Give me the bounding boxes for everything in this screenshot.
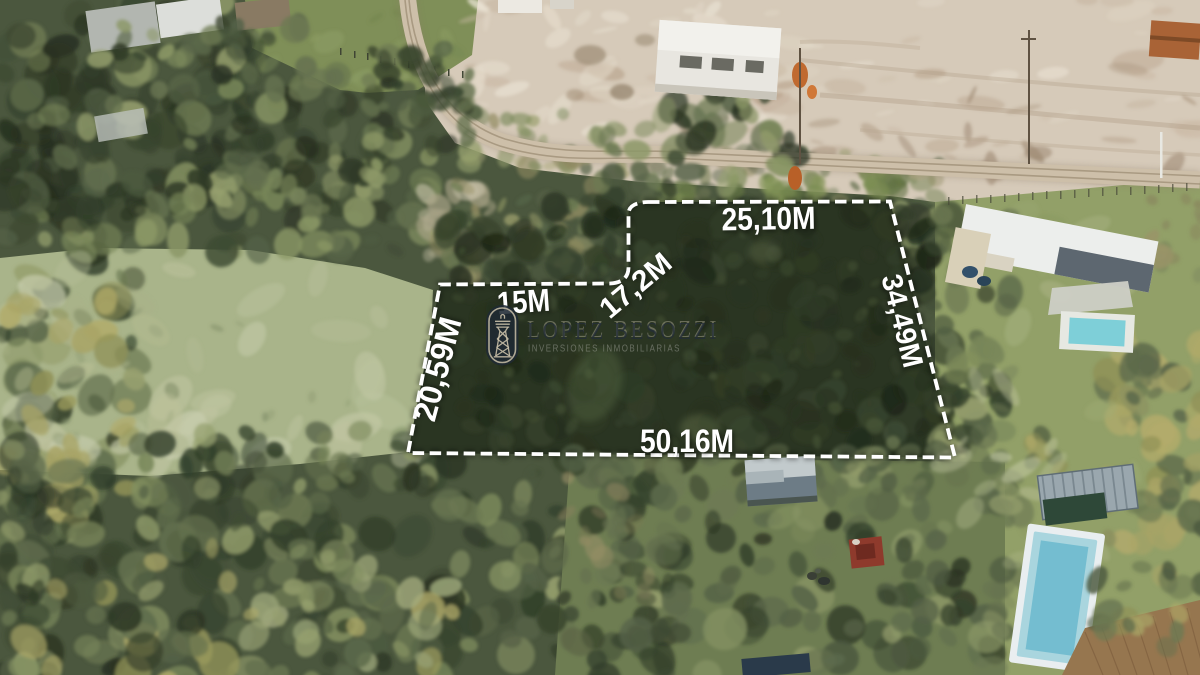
- svg-text:50,16M: 50,16M: [640, 423, 734, 459]
- svg-text:LOPEZ BESOZZI: LOPEZ BESOZZI: [527, 319, 719, 345]
- svg-text:INVERSIONES INMOBILIARIAS: INVERSIONES INMOBILIARIAS: [528, 343, 681, 355]
- svg-text:25,10M: 25,10M: [721, 200, 816, 238]
